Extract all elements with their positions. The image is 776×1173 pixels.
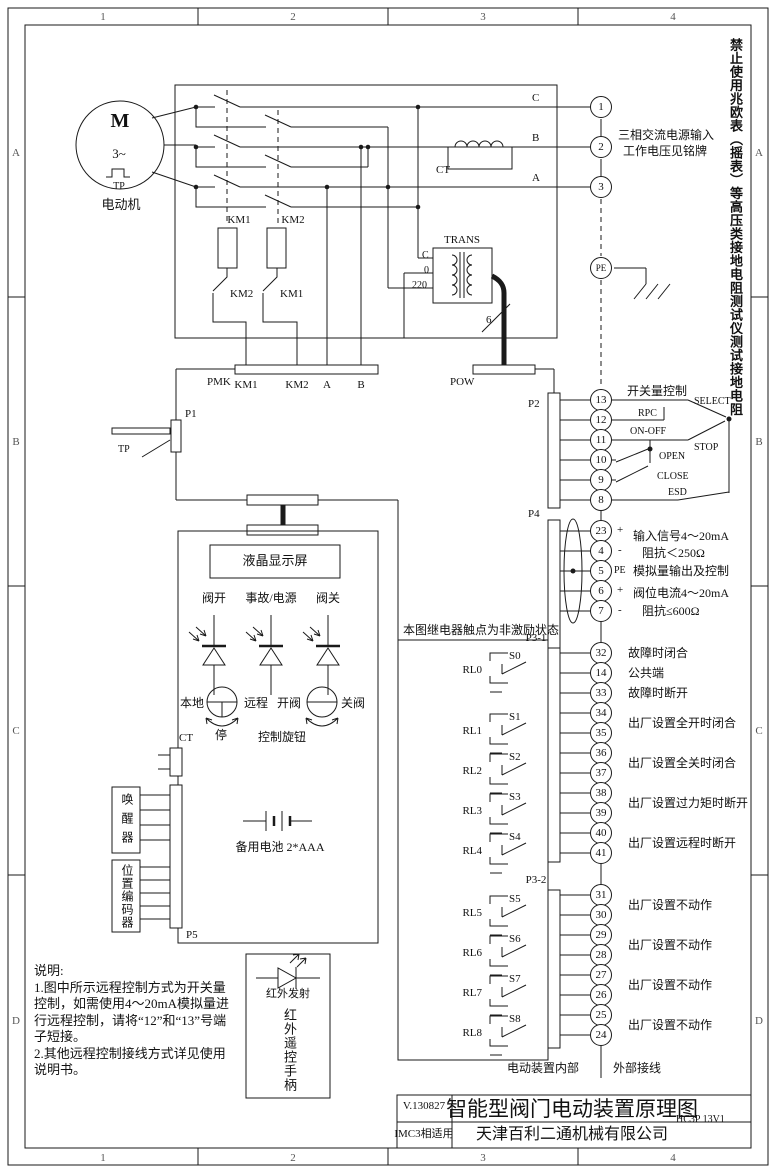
encoder-label: 位置编码器 bbox=[119, 864, 135, 929]
trans-tap-220: 220 bbox=[412, 280, 427, 292]
zone-row-c2: C bbox=[755, 723, 762, 739]
p31-label-6: 出厂设置过力矩时断开 bbox=[628, 795, 748, 811]
terminal-circle: 10 bbox=[590, 449, 612, 471]
terminal-circle: 5 bbox=[590, 560, 612, 582]
p3-2-label: P3-2 bbox=[526, 874, 547, 887]
notes-line: 子短接。 bbox=[34, 1029, 270, 1046]
led-open-label: 阀开 bbox=[202, 590, 226, 606]
p31-label-4: 出厂设置全开时闭合 bbox=[628, 715, 736, 731]
drawing-code: HC3P 13V1 bbox=[676, 1114, 725, 1126]
relay-switch-label: S1 bbox=[509, 711, 521, 724]
p32-label-2: 出厂设置不动作 bbox=[628, 937, 712, 953]
p1-label: P1 bbox=[185, 408, 197, 421]
motor-phase: 3~ bbox=[112, 146, 126, 162]
terminal-circle: 13 bbox=[590, 389, 612, 411]
ir-emit-label: 红外发射 bbox=[266, 988, 310, 1001]
motor-symbol bbox=[76, 101, 196, 189]
terminal-circle: 14 bbox=[590, 662, 612, 684]
terminal-circle: 32 bbox=[590, 642, 612, 664]
knob-openvalve-label: 开阀 bbox=[277, 695, 301, 711]
onoff-label: ON-OFF bbox=[630, 426, 666, 438]
terminal-circle: 6 bbox=[590, 580, 612, 602]
terminal-circle: 34 bbox=[590, 702, 612, 724]
zone-row-a: A bbox=[12, 145, 20, 161]
terminal-circle: 9 bbox=[590, 469, 612, 491]
zone-row-a2: A bbox=[755, 145, 763, 161]
pmk-label: PMK bbox=[207, 376, 231, 389]
terminal-circle: PE bbox=[590, 257, 612, 279]
zone-row-d2: D bbox=[755, 1013, 763, 1029]
terminal-circle: 29 bbox=[590, 924, 612, 946]
terminal-circle: 7 bbox=[590, 600, 612, 622]
p31-label-3: 故障时断开 bbox=[628, 685, 688, 701]
knob-label: 控制旋钮 bbox=[258, 729, 306, 745]
zone-col-1b: 1 bbox=[100, 1150, 106, 1166]
trans-label: TRANS bbox=[444, 234, 480, 247]
ir-handle-label: 红外遥控手柄 bbox=[281, 1008, 297, 1092]
trans-tap-c: C bbox=[422, 250, 429, 262]
terminal-circle: 27 bbox=[590, 964, 612, 986]
terminal-circle: 41 bbox=[590, 842, 612, 864]
km1-switch-label: KM1 bbox=[227, 214, 250, 227]
analog-label-4: 阀位电流4～20mA bbox=[633, 585, 729, 601]
knob-remote-label: 远程 bbox=[244, 695, 268, 711]
supply-note-2: 工作电压见铭牌 bbox=[623, 143, 707, 159]
ct-label: CT bbox=[436, 164, 450, 177]
sign-minus-1: - bbox=[618, 544, 622, 557]
zone-col-2: 2 bbox=[290, 9, 296, 25]
terminal-circle: 11 bbox=[590, 429, 612, 451]
terminal-circle: 36 bbox=[590, 742, 612, 764]
pmk-pin-b: B bbox=[357, 379, 364, 392]
analog-label-2: 阻抗＜250Ω bbox=[642, 545, 705, 561]
relay-name: RL2 bbox=[452, 765, 482, 778]
terminal-circle: 35 bbox=[590, 722, 612, 744]
notes-line: 行远程控制，请将“12”和“13”号端 bbox=[34, 1013, 270, 1030]
sign-pe: PE bbox=[614, 565, 626, 577]
notes-line: 控制，如需使用4～20mA模拟量进 bbox=[34, 996, 270, 1013]
pow-label: POW bbox=[450, 376, 474, 389]
rpc-label: RPC bbox=[638, 408, 657, 420]
km2-interlock-label: KM1 bbox=[280, 288, 303, 301]
sign-minus-2: - bbox=[618, 604, 622, 617]
km2-switch-label: KM2 bbox=[281, 214, 304, 227]
zone-col-3b: 3 bbox=[480, 1150, 486, 1166]
zone-row-d: D bbox=[12, 1013, 20, 1029]
terminal-circle: 38 bbox=[590, 782, 612, 804]
zone-row-b2: B bbox=[755, 434, 762, 450]
analog-label-1: 输入信号4～20mA bbox=[633, 528, 729, 544]
pmk-pin-km1: KM1 bbox=[234, 379, 257, 392]
select-label: SELECT bbox=[694, 396, 731, 408]
pmk-pin-km2: KM2 bbox=[285, 379, 308, 392]
notes-line: 说明书。 bbox=[34, 1062, 270, 1079]
terminal-circle: 1 bbox=[590, 96, 612, 118]
relay-name: RL0 bbox=[452, 664, 482, 677]
relay-switch-label: S4 bbox=[509, 831, 521, 844]
led-fault-label: 事故/电源 bbox=[245, 590, 296, 606]
trans-tap-0: 0 bbox=[424, 265, 429, 277]
wakeup-label: 唤醒器 bbox=[119, 793, 135, 850]
zone-col-2b: 2 bbox=[290, 1150, 296, 1166]
drawing-model: IMC3相适用 bbox=[394, 1128, 453, 1141]
terminal-circle: 24 bbox=[590, 1024, 612, 1046]
drawing-version: V.130827 bbox=[403, 1100, 445, 1113]
zone-col-3: 3 bbox=[480, 9, 486, 25]
terminal-circle: 4 bbox=[590, 540, 612, 562]
motor-m: M bbox=[111, 113, 130, 129]
relay-state-note: 本图继电器触点为非激励状态 bbox=[403, 622, 559, 638]
p4-label: P4 bbox=[528, 508, 540, 521]
knob-stop-label: 停 bbox=[215, 727, 227, 743]
relay-switch-label: S0 bbox=[509, 650, 521, 663]
terminal-circle: 40 bbox=[590, 822, 612, 844]
notes-title: 说明: bbox=[34, 963, 270, 980]
internal-label: 电动装置内部 bbox=[507, 1060, 579, 1076]
p32-label-3: 出厂设置不动作 bbox=[628, 977, 712, 993]
battery-label: 备用电池 2*AAA bbox=[236, 839, 325, 855]
phase-b-label: B bbox=[532, 132, 539, 145]
knob-local-label: 本地 bbox=[180, 695, 204, 711]
open-label: OPEN bbox=[659, 451, 685, 463]
motor-label: 电动机 bbox=[101, 197, 140, 213]
pmk-pin-a: A bbox=[323, 379, 331, 392]
drawing-title: 智能型阀门电动装置原理图 bbox=[446, 1097, 698, 1121]
zone-col-4b: 4 bbox=[670, 1150, 676, 1166]
motor-tp: TP bbox=[113, 181, 125, 193]
terminal-circle: 25 bbox=[590, 1004, 612, 1026]
notes-line: 1.图中所示远程控制方式为开关量 bbox=[34, 980, 270, 997]
relay-name: RL1 bbox=[452, 725, 482, 738]
led-close-label: 阀关 bbox=[316, 590, 340, 606]
zone-col-4: 4 bbox=[670, 9, 676, 25]
relay-switch-label: S2 bbox=[509, 751, 521, 764]
external-label: 外部接线 bbox=[613, 1060, 661, 1076]
esd-label: ESD bbox=[668, 487, 687, 499]
relay-name: RL8 bbox=[452, 1027, 482, 1040]
sign-plus-1: + bbox=[617, 524, 623, 537]
analog-label-3: 模拟量输出及控制 bbox=[633, 563, 729, 579]
relay-switch-label: S8 bbox=[509, 1013, 521, 1026]
supply-note-1: 三相交流电源输入 bbox=[618, 127, 714, 143]
relay-name: RL5 bbox=[452, 907, 482, 920]
notes-block: 说明: 1.图中所示远程控制方式为开关量 控制，如需使用4～20mA模拟量进 行… bbox=[34, 963, 270, 1079]
p31-label-2: 公共端 bbox=[628, 665, 664, 681]
terminal-circle: 39 bbox=[590, 802, 612, 824]
terminal-circle: 37 bbox=[590, 762, 612, 784]
relay-switch-label: S7 bbox=[509, 973, 521, 986]
knob-closevalve-label: 关阀 bbox=[341, 695, 365, 711]
terminal-circle: 33 bbox=[590, 682, 612, 704]
relay-switch-label: S5 bbox=[509, 893, 521, 906]
terminal-circle: 12 bbox=[590, 409, 612, 431]
phase-a-label: A bbox=[532, 172, 540, 185]
terminal-circle: 26 bbox=[590, 984, 612, 1006]
terminal-circle: 31 bbox=[590, 884, 612, 906]
p31-label-7: 出厂设置远程时断开 bbox=[628, 835, 736, 851]
relay-switch-label: S6 bbox=[509, 933, 521, 946]
relay-name: RL6 bbox=[452, 947, 482, 960]
p31-label-1: 故障时闭合 bbox=[628, 645, 688, 661]
terminal-circle: 30 bbox=[590, 904, 612, 926]
terminal-circle: 2 bbox=[590, 136, 612, 158]
terminal-circle: 23 bbox=[590, 520, 612, 542]
relay-switch-label: S3 bbox=[509, 791, 521, 804]
schematic-sheet: 1 2 3 4 1 2 3 4 A B C D A B C D 禁止使用兆欧表（… bbox=[0, 0, 776, 1173]
p5-label: P5 bbox=[186, 929, 198, 942]
terminal-circle: 3 bbox=[590, 176, 612, 198]
sign-plus-2: + bbox=[617, 584, 623, 597]
stop-label: STOP bbox=[694, 442, 718, 454]
p31-label-5: 出厂设置全关时闭合 bbox=[628, 755, 736, 771]
relay-name: RL7 bbox=[452, 987, 482, 1000]
notes-line: 2.其他远程控制接线方式详见使用 bbox=[34, 1046, 270, 1063]
lcd-label: 液晶显示屏 bbox=[242, 553, 307, 569]
zone-row-c: C bbox=[12, 723, 19, 739]
relay-name: RL4 bbox=[452, 845, 482, 858]
analog-label-5: 阻抗≤600Ω bbox=[642, 603, 700, 619]
company-name: 天津百利二通机械有限公司 bbox=[476, 1125, 668, 1145]
terminal-circle: 8 bbox=[590, 489, 612, 511]
terminal-circle: 28 bbox=[590, 944, 612, 966]
relay-name: RL3 bbox=[452, 805, 482, 818]
p1-tp-label: TP bbox=[118, 444, 130, 456]
phase-c-label: C bbox=[532, 92, 539, 105]
panel-ct-label: CT bbox=[179, 732, 193, 745]
zone-row-b: B bbox=[12, 434, 19, 450]
p2-label: P2 bbox=[528, 398, 540, 411]
megger-warning-text: 禁止使用兆欧表（摇表）等高压类接地电阻测试仪测试接地电阻 bbox=[728, 38, 743, 416]
p32-label-4: 出厂设置不动作 bbox=[628, 1017, 712, 1033]
zone-col-1: 1 bbox=[100, 9, 106, 25]
digital-title: 开关量控制 bbox=[627, 383, 687, 399]
close-label: CLOSE bbox=[657, 471, 689, 483]
km1-interlock-label: KM2 bbox=[230, 288, 253, 301]
cable-6-label: 6 bbox=[486, 314, 492, 327]
p32-label-1: 出厂设置不动作 bbox=[628, 897, 712, 913]
